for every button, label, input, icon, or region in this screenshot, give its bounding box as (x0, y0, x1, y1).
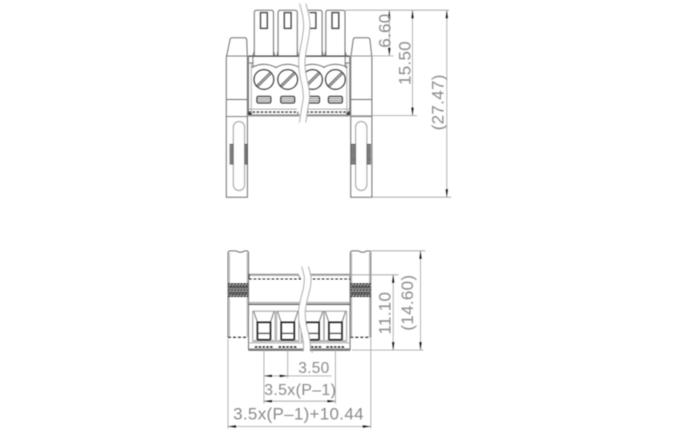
svg-text:6.60: 6.60 (375, 13, 394, 47)
svg-text:3.50: 3.50 (298, 360, 329, 377)
svg-text:3.5x(P–1): 3.5x(P–1) (264, 382, 336, 399)
svg-text:15.50: 15.50 (395, 41, 414, 85)
svg-text:3.5x(P–1)+10.44: 3.5x(P–1)+10.44 (233, 404, 364, 423)
svg-text:(27.47): (27.47) (428, 74, 447, 130)
svg-text:(14.60): (14.60) (398, 275, 417, 331)
svg-text:11.10: 11.10 (375, 292, 394, 335)
